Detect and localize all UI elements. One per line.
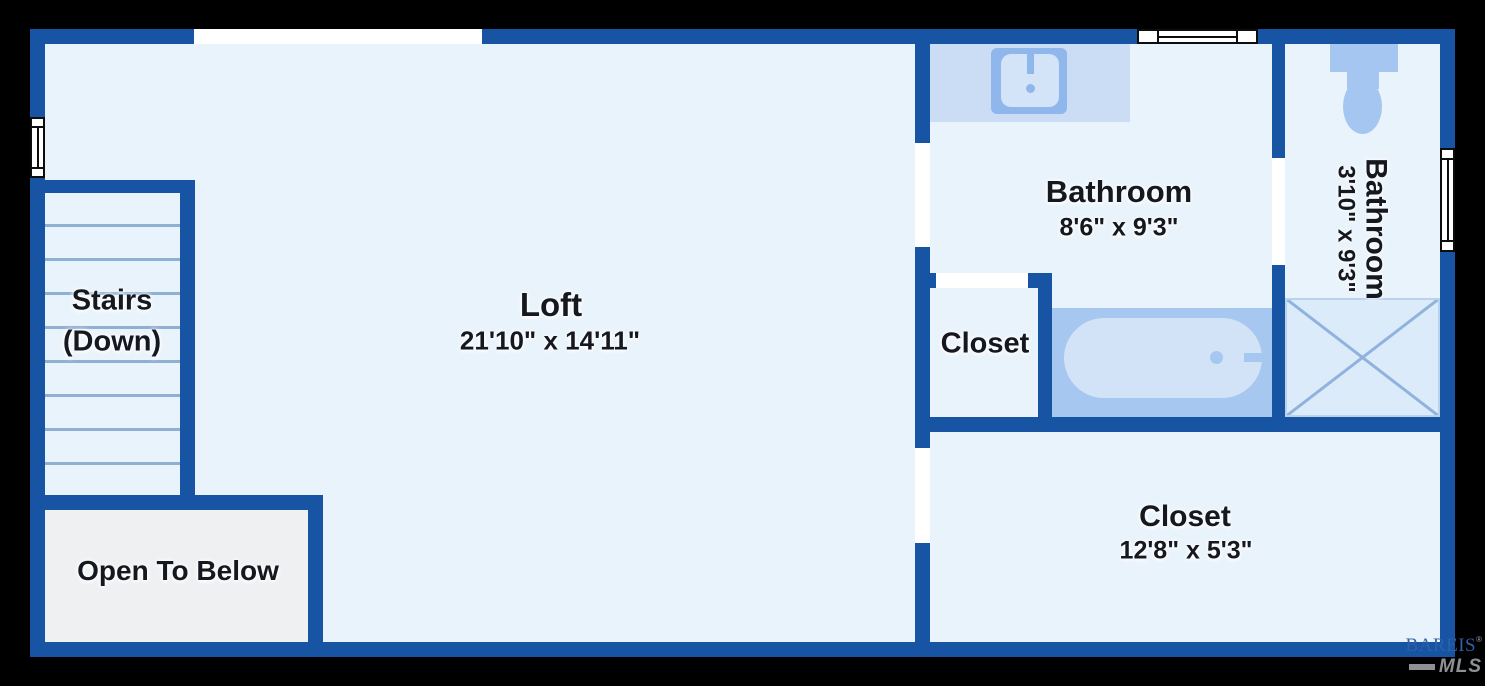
- opening-top-left: [194, 29, 482, 44]
- closet-large-label: Closet: [1139, 500, 1231, 534]
- watermark: BAREIS® MLS: [1394, 636, 1482, 676]
- floorplan-canvas: Loft 21'10" x 14'11" Stairs (Down) Open …: [0, 0, 1485, 686]
- window-top-wall: [1137, 29, 1258, 44]
- shower-icon: [1285, 298, 1440, 417]
- bathroom-ensuite-dims: 3'10" x 9'3": [1332, 158, 1360, 300]
- wall-stairs-top: [45, 180, 195, 193]
- door-opening-closet-small: [936, 273, 1028, 288]
- bathroom-main-label: Bathroom: [1046, 174, 1192, 210]
- bathroom-main-dims: 8'6" x 9'3": [1059, 214, 1178, 243]
- watermark-brand: BAREIS: [1406, 635, 1477, 656]
- open-to-below-label: Open To Below: [77, 555, 279, 587]
- sink-icon: [991, 48, 1067, 114]
- toilet-icon: [1330, 44, 1398, 139]
- door-opening-bathroom-ensuite: [1272, 158, 1285, 265]
- wall-closet-small-right: [1038, 273, 1052, 432]
- loft-label: Loft: [520, 286, 582, 324]
- wall-bathroom-row-bottom: [915, 417, 1455, 432]
- bathtub-icon: [1052, 308, 1272, 417]
- stairs-down-label: (Down): [63, 326, 161, 359]
- closet-large-dims: 12'8" x 5'3": [1120, 537, 1253, 566]
- closet-small-label: Closet: [941, 328, 1030, 361]
- watermark-registered: ®: [1476, 635, 1482, 644]
- wall-right: [1440, 29, 1455, 657]
- wall-open-below-right: [308, 495, 323, 657]
- window-left-wall: [30, 117, 45, 178]
- loft-dims: 21'10" x 14'11": [460, 326, 640, 357]
- stairs-label: Stairs: [72, 285, 153, 318]
- watermark-sub: MLS: [1439, 657, 1482, 676]
- bathroom-ensuite-label: Bathroom: [1359, 158, 1392, 300]
- wall-open-below-top: [30, 495, 323, 510]
- door-opening-closet-large: [915, 448, 930, 543]
- wall-stairs-right: [180, 180, 195, 510]
- watermark-bar: [1409, 664, 1435, 670]
- wall-bottom: [30, 642, 1455, 657]
- bathroom-ensuite-label-group: Bathroom 3'10" x 9'3": [1332, 158, 1393, 300]
- window-right-wall: [1440, 148, 1455, 252]
- door-opening-bathroom-main: [915, 143, 930, 247]
- wall-loft-bathroom: [915, 29, 930, 657]
